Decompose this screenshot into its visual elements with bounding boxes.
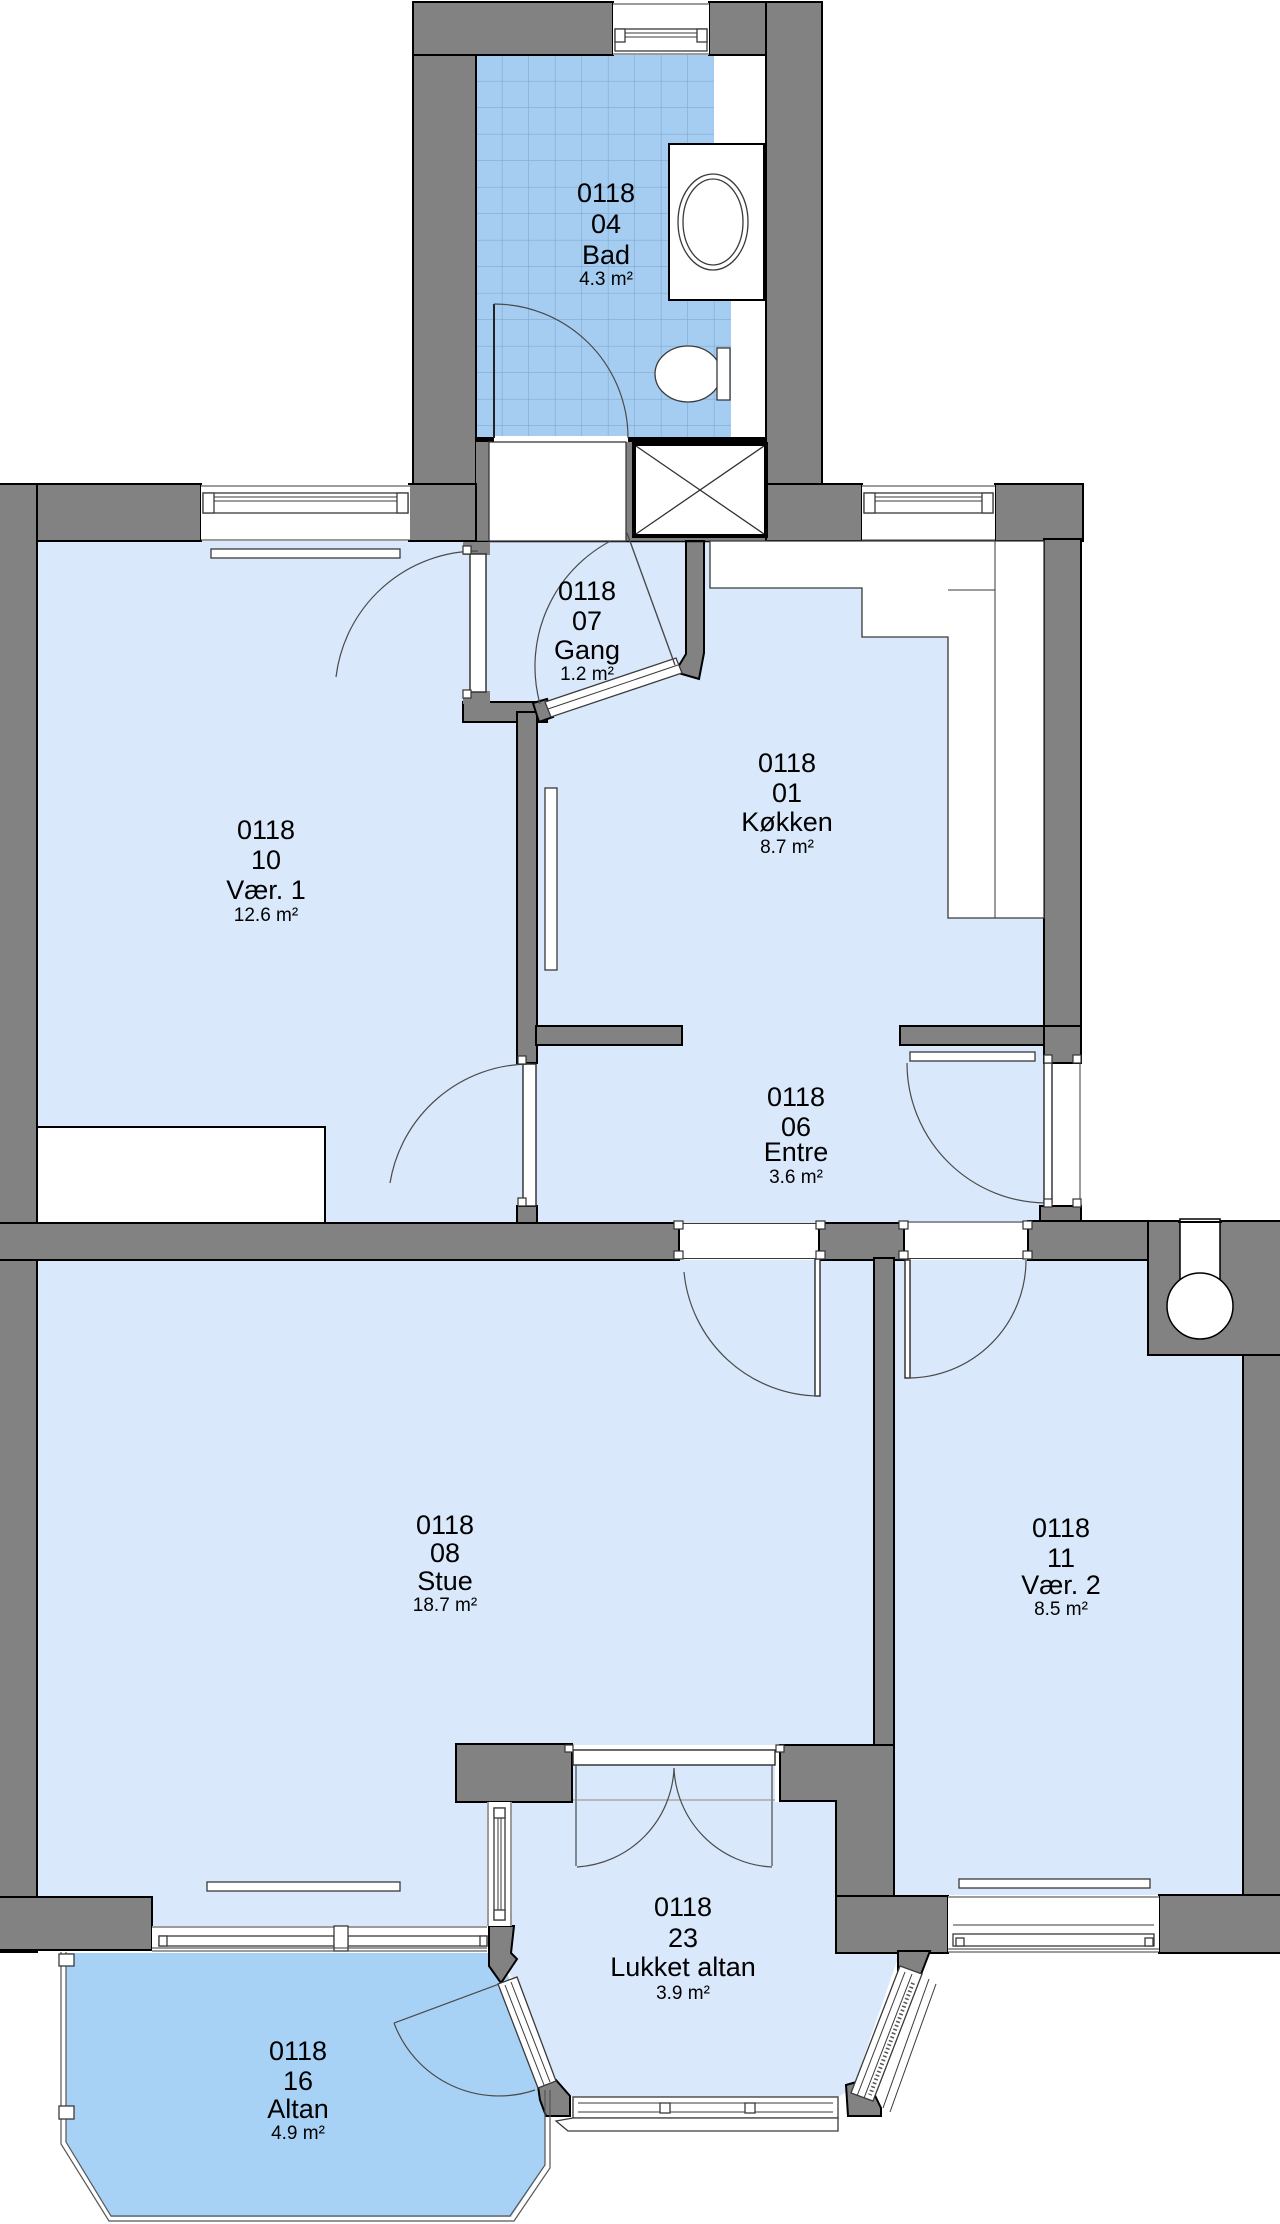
svg-text:04: 04 bbox=[591, 209, 621, 239]
svg-text:08: 08 bbox=[430, 1538, 460, 1568]
svg-text:Lukket altan: Lukket altan bbox=[610, 1952, 756, 1982]
svg-text:23: 23 bbox=[668, 1923, 698, 1953]
svg-text:0118: 0118 bbox=[767, 1082, 825, 1112]
svg-text:0118: 0118 bbox=[1032, 1513, 1090, 1543]
svg-text:07: 07 bbox=[572, 606, 602, 636]
svg-text:18.7 m²: 18.7 m² bbox=[413, 1595, 477, 1616]
svg-text:01: 01 bbox=[772, 778, 802, 808]
svg-text:0118: 0118 bbox=[758, 748, 816, 778]
svg-text:0118: 0118 bbox=[577, 178, 635, 208]
svg-text:Bad: Bad bbox=[582, 240, 630, 270]
svg-text:11: 11 bbox=[1047, 1543, 1075, 1573]
svg-text:Altan: Altan bbox=[267, 2094, 329, 2124]
svg-text:Entre: Entre bbox=[764, 1137, 829, 1167]
svg-text:Stue: Stue bbox=[417, 1566, 473, 1596]
svg-text:Vær. 1: Vær. 1 bbox=[226, 875, 306, 905]
svg-text:8.7 m²: 8.7 m² bbox=[760, 837, 814, 858]
svg-text:3.9 m²: 3.9 m² bbox=[656, 1983, 710, 2004]
svg-text:4.3 m²: 4.3 m² bbox=[579, 269, 633, 290]
svg-text:1.2 m²: 1.2 m² bbox=[560, 664, 614, 685]
svg-text:0118: 0118 bbox=[237, 815, 295, 845]
svg-text:12.6 m²: 12.6 m² bbox=[234, 905, 298, 926]
svg-text:Køkken: Køkken bbox=[741, 807, 833, 837]
svg-text:0118: 0118 bbox=[558, 576, 616, 606]
svg-text:4.9 m²: 4.9 m² bbox=[271, 2123, 325, 2144]
svg-text:10: 10 bbox=[251, 845, 281, 875]
svg-text:0118: 0118 bbox=[416, 1510, 474, 1540]
svg-text:Vær. 2: Vær. 2 bbox=[1021, 1570, 1101, 1600]
svg-text:0118: 0118 bbox=[269, 2036, 327, 2066]
svg-text:16: 16 bbox=[283, 2066, 313, 2096]
svg-text:Gang: Gang bbox=[554, 635, 620, 665]
svg-text:3.6 m²: 3.6 m² bbox=[769, 1167, 823, 1188]
svg-text:0118: 0118 bbox=[654, 1892, 712, 1922]
svg-text:8.5 m²: 8.5 m² bbox=[1034, 1599, 1088, 1620]
